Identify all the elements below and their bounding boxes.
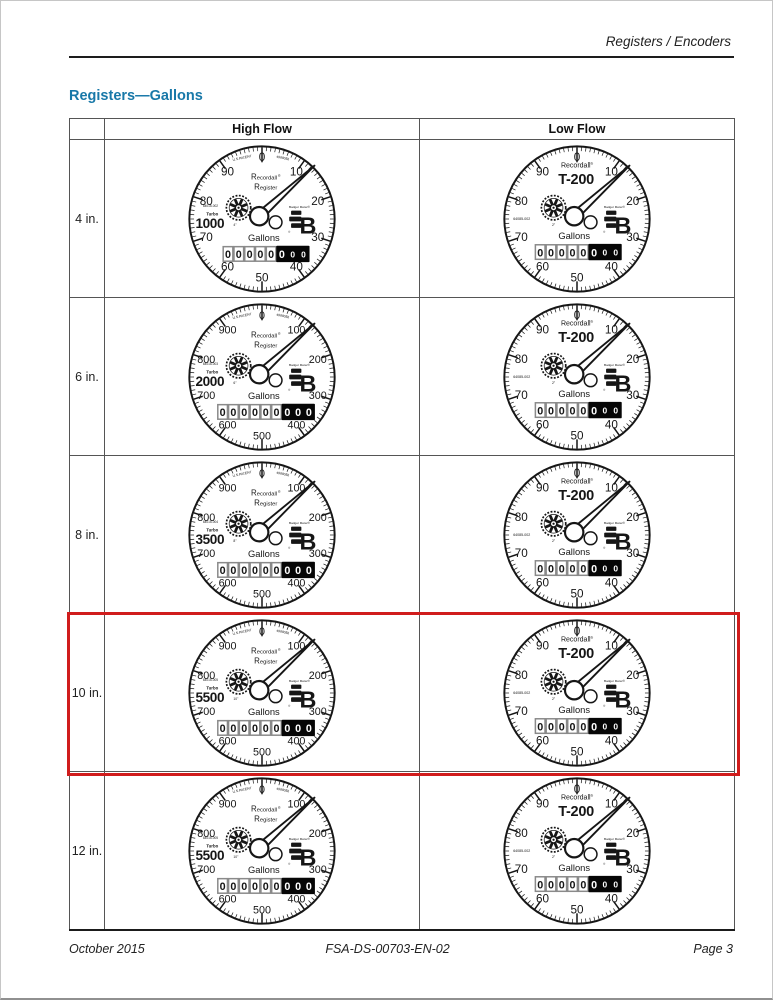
svg-text:0: 0 (263, 723, 269, 735)
brand-text: Recordall®T-200 (558, 794, 594, 820)
svg-text:B: B (300, 528, 317, 554)
svg-text:0: 0 (548, 721, 554, 733)
dial-cell-high-flow: 0102030405060708090U.S.PATENT4988056Reco… (105, 140, 420, 298)
svg-text:B: B (615, 370, 632, 396)
svg-text:0: 0 (252, 407, 258, 419)
svg-text:0: 0 (225, 249, 231, 261)
svg-text:Badger Meter®: Badger Meter® (604, 678, 626, 682)
svg-text:0: 0 (274, 565, 280, 577)
svg-text:80: 80 (515, 826, 529, 839)
svg-text:B: B (300, 212, 317, 238)
svg-text:0: 0 (613, 405, 618, 415)
svg-text:80: 80 (515, 194, 529, 207)
svg-text:®: ® (288, 388, 290, 392)
svg-text:70: 70 (515, 231, 529, 244)
svg-text:60: 60 (221, 260, 235, 273)
svg-text:0: 0 (559, 879, 565, 891)
svg-text:0: 0 (241, 723, 247, 735)
units-label: Gallons (248, 549, 280, 559)
svg-text:0: 0 (274, 723, 280, 735)
svg-text:0: 0 (580, 721, 586, 733)
svg-text:700: 700 (197, 706, 215, 718)
svg-text:0: 0 (306, 881, 312, 893)
odometer: 00000000 (535, 875, 621, 891)
brand-text: Recordall®T-200 (558, 478, 594, 504)
needle-hub (250, 839, 268, 857)
svg-text:50: 50 (570, 903, 584, 916)
svg-text:0: 0 (259, 468, 265, 480)
svg-text:0: 0 (548, 563, 554, 575)
dial-cell-low-flow: 0102030405060708090Recordall®T-20064085-… (420, 772, 735, 931)
needle-hub (565, 207, 583, 225)
dial-low-flow-4-in: 0102030405060708090Recordall®T-20064085-… (502, 144, 652, 294)
needle-hub (250, 681, 268, 699)
svg-text:80: 80 (515, 352, 529, 365)
svg-text:®: ® (288, 546, 290, 550)
svg-text:0: 0 (548, 405, 554, 417)
odometer: 000000000 (218, 403, 315, 419)
table-row: 8 in.0100200300400500600700800900U.S.PAT… (70, 456, 735, 614)
svg-text:Recordall®: Recordall® (561, 794, 594, 801)
svg-text:0: 0 (295, 881, 301, 893)
column-header-high-flow: High Flow (105, 119, 420, 140)
gear-icon (226, 353, 250, 377)
svg-text:0: 0 (274, 407, 280, 419)
svg-text:200: 200 (309, 827, 327, 839)
svg-text:400: 400 (287, 893, 305, 905)
svg-text:0: 0 (603, 405, 608, 415)
svg-text:0: 0 (263, 881, 269, 893)
svg-text:0: 0 (230, 723, 236, 735)
svg-text:0: 0 (580, 879, 586, 891)
dial-high-flow-8-in: 0100200300400500600700800900U.S.PATENT49… (187, 460, 337, 610)
units-label: Gallons (248, 391, 280, 401)
odometer: 00000000 (223, 245, 309, 261)
svg-text:0: 0 (257, 249, 263, 261)
svg-text:®: ® (603, 704, 605, 708)
svg-text:0: 0 (613, 879, 618, 889)
svg-text:Recordall®: Recordall® (561, 478, 594, 485)
svg-text:B: B (300, 686, 317, 712)
dial-high-flow-10-in: 0100200300400500600700800900U.S.PATENT49… (187, 618, 337, 768)
svg-text:T-200: T-200 (558, 645, 594, 661)
svg-text:900: 900 (219, 640, 237, 652)
row-label: 4 in. (70, 140, 105, 298)
svg-text:60: 60 (536, 576, 550, 589)
svg-text:20: 20 (626, 826, 640, 839)
svg-text:400: 400 (287, 577, 305, 589)
svg-text:Recordall®: Recordall® (561, 320, 594, 327)
svg-text:0: 0 (220, 565, 226, 577)
svg-text:0: 0 (284, 723, 290, 735)
gear-icon (541, 353, 565, 377)
svg-text:®: ® (288, 230, 290, 234)
svg-text:0: 0 (259, 784, 265, 796)
part-number: 64015-003 (203, 361, 218, 365)
svg-text:0: 0 (220, 881, 226, 893)
units-label: Gallons (248, 233, 280, 243)
svg-text:0: 0 (295, 723, 301, 735)
dial-cell-low-flow: 0102030405060708090Recordall®T-20064085-… (420, 456, 735, 614)
gear-icon (226, 195, 250, 219)
svg-text:0: 0 (570, 721, 576, 733)
svg-text:0: 0 (241, 565, 247, 577)
svg-text:0: 0 (220, 407, 226, 419)
svg-text:0: 0 (252, 723, 258, 735)
svg-text:B: B (615, 844, 632, 870)
svg-text:0: 0 (279, 249, 285, 261)
svg-text:0: 0 (559, 563, 565, 575)
svg-text:90: 90 (536, 481, 550, 494)
svg-text:0: 0 (613, 721, 618, 731)
svg-text:0: 0 (591, 247, 597, 259)
units-label: Gallons (558, 231, 590, 241)
table-row: 12 in.0100200300400500600700800900U.S.PA… (70, 772, 735, 931)
svg-text:0: 0 (259, 310, 265, 322)
dial-cell-low-flow: 0102030405060708090Recordall®T-20064085-… (420, 140, 735, 298)
svg-text:20: 20 (626, 194, 640, 207)
svg-text:70: 70 (515, 863, 529, 876)
svg-text:Badger Meter®: Badger Meter® (604, 836, 626, 840)
dial-low-flow-10-in: 0102030405060708090Recordall®T-20064085-… (502, 618, 652, 768)
part-number: 64085-002 (513, 848, 530, 852)
svg-text:90: 90 (536, 165, 550, 178)
svg-text:®: ® (603, 230, 605, 234)
brand-text: Recordall®T-200 (558, 636, 594, 662)
svg-text:Badger Meter®: Badger Meter® (289, 520, 311, 524)
footer-page-number: Page 3 (693, 942, 733, 956)
svg-text:0: 0 (570, 563, 576, 575)
svg-text:B: B (300, 370, 317, 396)
svg-text:0: 0 (570, 405, 576, 417)
units-label: Gallons (558, 863, 590, 873)
svg-text:0: 0 (263, 565, 269, 577)
units-label: Gallons (248, 707, 280, 717)
svg-text:B: B (300, 844, 317, 870)
svg-text:200: 200 (309, 511, 327, 523)
svg-text:Recordall®: Recordall® (561, 162, 594, 169)
svg-text:B: B (615, 686, 632, 712)
svg-text:500: 500 (253, 904, 271, 916)
svg-text:0: 0 (559, 247, 565, 259)
dial-cell-low-flow: 0102030405060708090Recordall®T-20064085-… (420, 298, 735, 456)
size-label: 10" (233, 697, 239, 701)
svg-text:0: 0 (230, 881, 236, 893)
odometer: 00000000 (535, 559, 621, 575)
svg-text:0: 0 (603, 247, 608, 257)
svg-text:0: 0 (306, 565, 312, 577)
svg-text:Badger Meter®: Badger Meter® (604, 362, 626, 366)
svg-text:90: 90 (536, 323, 550, 336)
dial-cell-low-flow: 0102030405060708090Recordall®T-20064085-… (420, 614, 735, 772)
svg-text:40: 40 (605, 576, 619, 589)
odometer: 00000000 (535, 401, 621, 417)
dial-high-flow-4-in: 0102030405060708090U.S.PATENT4988056Reco… (187, 144, 337, 294)
svg-text:0: 0 (603, 879, 608, 889)
svg-text:0: 0 (301, 249, 306, 259)
svg-text:900: 900 (219, 482, 237, 494)
svg-text:0: 0 (252, 881, 258, 893)
part-number: 64015-005 (203, 677, 218, 681)
gear-icon (541, 511, 565, 535)
table-header-row: High Flow Low Flow (70, 119, 735, 140)
svg-text:0: 0 (295, 565, 301, 577)
svg-text:0: 0 (548, 247, 554, 259)
svg-text:70: 70 (515, 389, 529, 402)
svg-text:0: 0 (570, 879, 576, 891)
dial-cell-high-flow: 0100200300400500600700800900U.S.PATENT49… (105, 298, 420, 456)
svg-text:0: 0 (537, 721, 543, 733)
svg-text:Recordall®: Recordall® (561, 636, 594, 643)
dial-high-flow-6-in: 0100200300400500600700800900U.S.PATENT49… (187, 302, 337, 452)
svg-text:0: 0 (537, 405, 543, 417)
svg-text:0: 0 (306, 723, 312, 735)
svg-text:90: 90 (221, 165, 235, 178)
document-page: Registers / Encoders Registers—Gallons H… (0, 0, 773, 1000)
svg-text:60: 60 (536, 418, 550, 431)
svg-text:60: 60 (536, 260, 550, 273)
svg-text:500: 500 (253, 588, 271, 600)
svg-text:®: ® (603, 546, 605, 550)
svg-text:Badger Meter®: Badger Meter® (289, 678, 311, 682)
registers-table: High Flow Low Flow 4 in.0102030405060708… (69, 118, 735, 931)
svg-text:900: 900 (219, 798, 237, 810)
svg-text:0: 0 (284, 407, 290, 419)
svg-text:0: 0 (274, 881, 280, 893)
svg-text:Badger Meter®: Badger Meter® (604, 204, 626, 208)
svg-text:50: 50 (255, 271, 269, 284)
svg-text:20: 20 (626, 352, 640, 365)
svg-text:0: 0 (259, 151, 266, 164)
series-value: 5500 (195, 689, 224, 704)
svg-text:40: 40 (605, 892, 619, 905)
svg-text:®: ® (288, 704, 290, 708)
dial-cell-high-flow: 0100200300400500600700800900U.S.PATENT49… (105, 456, 420, 614)
svg-text:0: 0 (580, 405, 586, 417)
units-label: Gallons (248, 865, 280, 875)
svg-text:70: 70 (200, 231, 214, 244)
svg-text:0: 0 (252, 565, 258, 577)
series-value: 5500 (195, 847, 224, 862)
svg-text:400: 400 (287, 419, 305, 431)
svg-text:500: 500 (253, 430, 271, 442)
svg-text:20: 20 (311, 194, 325, 207)
svg-text:0: 0 (603, 721, 608, 731)
svg-text:60: 60 (536, 892, 550, 905)
svg-text:600: 600 (219, 735, 237, 747)
svg-text:0: 0 (295, 407, 301, 419)
part-number: 64015-002 (203, 203, 218, 207)
series-value: 3500 (195, 531, 224, 546)
svg-text:0: 0 (263, 407, 269, 419)
svg-text:0: 0 (603, 563, 608, 573)
header-rule (69, 56, 734, 58)
svg-text:®: ® (603, 388, 605, 392)
part-number: 64085-002 (513, 690, 530, 694)
svg-text:0: 0 (559, 721, 565, 733)
svg-text:0: 0 (591, 563, 597, 575)
odometer: 000000000 (218, 877, 315, 893)
column-header-low-flow: Low Flow (420, 119, 735, 140)
svg-text:90: 90 (536, 797, 550, 810)
svg-text:0: 0 (559, 405, 565, 417)
svg-text:0: 0 (537, 879, 543, 891)
svg-text:0: 0 (259, 626, 265, 638)
svg-text:Badger Meter®: Badger Meter® (289, 362, 311, 366)
svg-text:0: 0 (580, 247, 586, 259)
dial-high-flow-12-in: 0100200300400500600700800900U.S.PATENT49… (187, 776, 337, 926)
needle-hub (250, 207, 268, 225)
odometer: 00000000 (535, 243, 621, 259)
svg-text:B: B (615, 528, 632, 554)
svg-text:T-200: T-200 (558, 329, 594, 345)
svg-text:0: 0 (230, 407, 236, 419)
series-value: 1000 (195, 215, 224, 230)
svg-text:200: 200 (309, 353, 327, 365)
svg-text:50: 50 (570, 587, 584, 600)
table-row: 10 in.0100200300400500600700800900U.S.PA… (70, 614, 735, 772)
row-label: 6 in. (70, 298, 105, 456)
svg-text:200: 200 (309, 669, 327, 681)
svg-text:40: 40 (290, 260, 304, 273)
svg-text:0: 0 (537, 247, 543, 259)
needle-hub (565, 365, 583, 383)
svg-text:0: 0 (284, 881, 290, 893)
svg-text:0: 0 (580, 563, 586, 575)
svg-text:0: 0 (284, 565, 290, 577)
svg-text:40: 40 (605, 260, 619, 273)
svg-text:40: 40 (605, 734, 619, 747)
svg-text:0: 0 (241, 881, 247, 893)
table-row: 6 in.0100200300400500600700800900U.S.PAT… (70, 298, 735, 456)
dial-low-flow-6-in: 0102030405060708090Recordall®T-20064085-… (502, 302, 652, 452)
svg-text:Badger Meter®: Badger Meter® (289, 204, 311, 208)
row-label: 10 in. (70, 614, 105, 772)
gear-icon (541, 195, 565, 219)
footer-doc-number: FSA-DS-00703-EN-02 (1, 942, 773, 956)
svg-text:0: 0 (591, 721, 597, 733)
running-header: Registers / Encoders (606, 34, 731, 49)
svg-text:0: 0 (247, 249, 253, 261)
svg-text:50: 50 (570, 271, 584, 284)
svg-text:80: 80 (515, 668, 529, 681)
svg-text:700: 700 (197, 548, 215, 560)
needle-hub (565, 681, 583, 699)
svg-text:70: 70 (515, 705, 529, 718)
svg-text:500: 500 (253, 746, 271, 758)
svg-text:®: ® (603, 862, 605, 866)
svg-text:0: 0 (230, 565, 236, 577)
svg-text:Badger Meter®: Badger Meter® (604, 520, 626, 524)
dial-low-flow-8-in: 0102030405060708090Recordall®T-20064085-… (502, 460, 652, 610)
series-value: 2000 (195, 373, 224, 388)
svg-text:700: 700 (197, 864, 215, 876)
row-label: 12 in. (70, 772, 105, 931)
svg-text:20: 20 (626, 510, 640, 523)
gear-icon (226, 669, 250, 693)
odometer: 000000000 (218, 561, 315, 577)
svg-text:0: 0 (241, 407, 247, 419)
svg-text:900: 900 (219, 324, 237, 336)
row-label: 8 in. (70, 456, 105, 614)
svg-text:70: 70 (515, 547, 529, 560)
gear-icon (226, 511, 250, 535)
svg-text:T-200: T-200 (558, 487, 594, 503)
units-label: Gallons (558, 547, 590, 557)
svg-text:60: 60 (536, 734, 550, 747)
svg-text:0: 0 (548, 879, 554, 891)
part-number: 64015-005 (203, 835, 218, 839)
svg-text:0: 0 (220, 723, 226, 735)
svg-text:700: 700 (197, 390, 215, 402)
dial-cell-high-flow: 0100200300400500600700800900U.S.PATENT49… (105, 614, 420, 772)
needle-hub (250, 365, 268, 383)
svg-text:0: 0 (268, 249, 274, 261)
svg-text:0: 0 (613, 563, 618, 573)
odometer: 000000000 (218, 719, 315, 735)
size-label: 10" (233, 855, 239, 859)
svg-text:50: 50 (570, 429, 584, 442)
brand-text: Recordall®T-200 (558, 162, 594, 188)
svg-text:600: 600 (219, 419, 237, 431)
part-number: 64085-002 (513, 532, 530, 536)
svg-text:600: 600 (219, 893, 237, 905)
svg-text:0: 0 (537, 563, 543, 575)
svg-text:B: B (615, 212, 632, 238)
svg-text:0: 0 (290, 249, 295, 259)
svg-text:0: 0 (236, 249, 242, 261)
page-title: Registers—Gallons (69, 88, 203, 104)
svg-text:40: 40 (605, 418, 619, 431)
corner-cell (70, 119, 105, 140)
svg-text:0: 0 (306, 407, 312, 419)
brand-text: Recordall®T-200 (558, 320, 594, 346)
odometer: 00000000 (535, 717, 621, 733)
svg-text:20: 20 (626, 668, 640, 681)
table-row: 4 in.0102030405060708090U.S.PATENT498805… (70, 140, 735, 298)
svg-text:Badger Meter®: Badger Meter® (289, 836, 311, 840)
needle-hub (565, 839, 583, 857)
dial-low-flow-12-in: 0102030405060708090Recordall®T-20064085-… (502, 776, 652, 926)
svg-text:T-200: T-200 (558, 171, 594, 187)
svg-text:600: 600 (219, 577, 237, 589)
svg-text:0: 0 (591, 879, 597, 891)
part-number: 64085-002 (513, 374, 530, 378)
gear-icon (541, 827, 565, 851)
needle-hub (565, 523, 583, 541)
svg-text:®: ® (288, 862, 290, 866)
dial-cell-high-flow: 0100200300400500600700800900U.S.PATENT49… (105, 772, 420, 931)
part-number: 64015-004 (203, 519, 218, 523)
svg-text:90: 90 (536, 639, 550, 652)
svg-text:0: 0 (591, 405, 597, 417)
part-number: 64085-002 (513, 216, 530, 220)
svg-text:400: 400 (287, 735, 305, 747)
svg-text:50: 50 (570, 745, 584, 758)
units-label: Gallons (558, 389, 590, 399)
gear-icon (541, 669, 565, 693)
gear-icon (226, 827, 250, 851)
units-label: Gallons (558, 705, 590, 715)
svg-text:0: 0 (613, 247, 618, 257)
needle-hub (250, 523, 268, 541)
svg-text:0: 0 (570, 247, 576, 259)
svg-text:T-200: T-200 (558, 803, 594, 819)
svg-text:80: 80 (515, 510, 529, 523)
